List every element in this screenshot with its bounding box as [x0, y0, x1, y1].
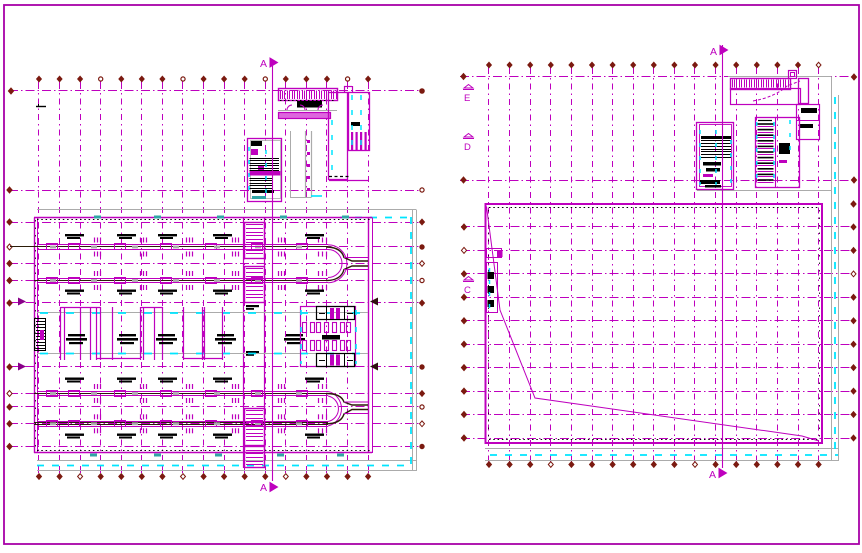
svg-text:D: D — [464, 142, 471, 153]
svg-text:E: E — [464, 93, 470, 104]
svg-text:A: A — [260, 482, 267, 494]
svg-text:A: A — [709, 469, 716, 481]
svg-text:A: A — [260, 58, 267, 70]
svg-text:A: A — [710, 46, 717, 58]
svg-text:C: C — [464, 285, 471, 296]
